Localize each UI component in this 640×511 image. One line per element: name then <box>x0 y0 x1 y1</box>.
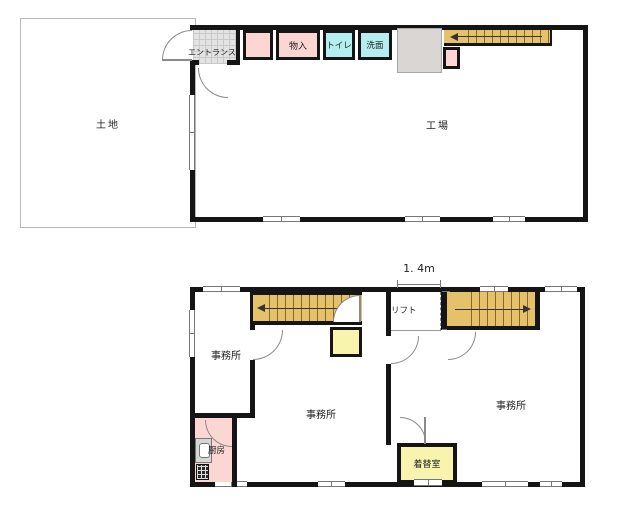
window <box>414 479 442 486</box>
land-label: 土地 <box>96 116 120 131</box>
stair-up-arrow-icon <box>257 304 265 312</box>
wall <box>250 360 255 418</box>
door-leaf <box>424 417 426 444</box>
closet-room <box>330 327 362 357</box>
stove-fixture <box>196 464 209 480</box>
wall <box>190 170 195 222</box>
changing-room-label: 着替室 <box>413 457 440 470</box>
window <box>482 481 528 487</box>
floor-plan-canvas: 土地 エントランス 物入 トイレ <box>0 0 640 511</box>
toilet-label: トイレ <box>326 39 352 51</box>
wall <box>190 60 199 65</box>
dimension-tick <box>440 280 441 288</box>
door-arc <box>448 332 476 360</box>
wall <box>525 217 588 222</box>
dimension-width-label: 1. 4m <box>393 262 445 275</box>
window <box>318 481 345 487</box>
staircase <box>444 27 552 46</box>
wall <box>232 418 237 487</box>
window <box>203 286 240 292</box>
door-arc <box>198 68 228 98</box>
entrance-label: エントランス <box>188 47 236 58</box>
door-leaf <box>162 59 192 61</box>
storage-label: 物入 <box>289 39 307 52</box>
window <box>540 481 562 487</box>
storage-room: 物入 <box>276 30 320 60</box>
window <box>189 310 195 357</box>
wall <box>190 60 195 95</box>
dimension-tick <box>397 280 398 288</box>
wall <box>227 60 240 65</box>
changing-room: 着替室 <box>397 443 457 484</box>
door-arc <box>391 336 419 364</box>
door-arc <box>400 417 426 443</box>
washroom-label: 洗面 <box>366 39 383 51</box>
factory-label: 工場 <box>410 117 466 132</box>
entrance-room: エントランス <box>193 30 240 64</box>
window <box>263 216 300 222</box>
office-small-label: 事務所 <box>197 347 255 362</box>
stair-centerline <box>456 36 542 37</box>
toilet-room: トイレ <box>323 30 355 60</box>
small-room <box>443 47 460 69</box>
dimension-line <box>398 284 441 285</box>
door-arc <box>253 330 283 360</box>
stair-up-arrow-icon <box>523 305 531 313</box>
wall <box>247 482 318 487</box>
window <box>493 216 525 222</box>
stair-centerline <box>455 309 525 310</box>
wall <box>583 25 588 222</box>
wall <box>580 287 585 487</box>
lift-label: リフト <box>391 304 421 316</box>
wall <box>190 287 195 310</box>
wall <box>460 482 482 487</box>
landing-area <box>397 28 442 73</box>
wall <box>562 482 585 487</box>
wall <box>528 482 540 487</box>
door-leaf <box>359 295 361 322</box>
office-center-label: 事務所 <box>289 406 353 421</box>
washroom-room: 洗面 <box>358 30 392 60</box>
office-right-label: 事務所 <box>478 397 544 412</box>
kitchen-label: 厨房 <box>208 444 225 456</box>
wall <box>190 217 263 222</box>
window <box>189 95 195 170</box>
small-room <box>243 30 273 60</box>
wall <box>440 217 493 222</box>
window <box>405 216 440 222</box>
window <box>545 286 577 292</box>
wall <box>300 217 405 222</box>
staircase <box>447 292 540 330</box>
stair-up-arrow-icon <box>450 33 458 41</box>
wall <box>386 364 391 445</box>
